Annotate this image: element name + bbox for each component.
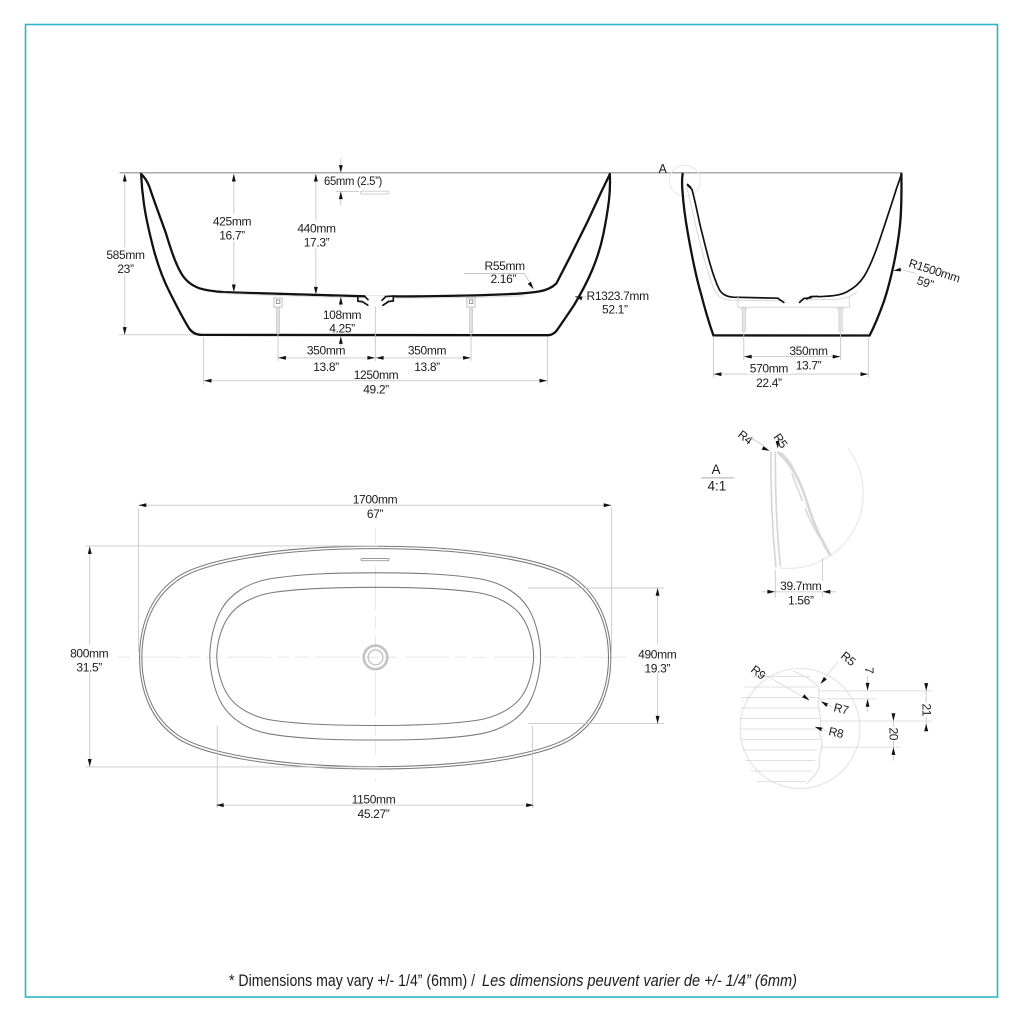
- svg-text:19.3”: 19.3”: [644, 661, 670, 675]
- svg-text:22.4”: 22.4”: [756, 376, 782, 390]
- svg-text:R55mm: R55mm: [485, 259, 526, 273]
- svg-text:350mm: 350mm: [789, 344, 828, 358]
- svg-text:800mm: 800mm: [70, 647, 109, 661]
- svg-text:585mm: 585mm: [106, 248, 145, 262]
- svg-text:39.7mm: 39.7mm: [780, 579, 822, 593]
- svg-text:4:1: 4:1: [708, 479, 727, 494]
- svg-text:1700mm: 1700mm: [353, 493, 398, 507]
- svg-text:R1323.7mm: R1323.7mm: [587, 289, 650, 303]
- svg-text:350mm: 350mm: [408, 343, 447, 357]
- svg-text:570mm: 570mm: [750, 362, 789, 376]
- svg-text:4.25”: 4.25”: [329, 322, 355, 336]
- svg-text:13.8”: 13.8”: [414, 360, 440, 374]
- svg-text:2.16”: 2.16”: [491, 272, 517, 286]
- svg-text:65mm (2.5”): 65mm (2.5”): [324, 174, 382, 188]
- svg-text:21: 21: [920, 703, 934, 716]
- svg-text:52.1”: 52.1”: [602, 303, 628, 317]
- svg-text:16.7”: 16.7”: [219, 229, 245, 243]
- svg-text:67”: 67”: [367, 507, 384, 521]
- svg-text:Les dimensions peuvent varier: Les dimensions peuvent varier de +/- 1/4…: [482, 972, 797, 990]
- svg-text:1150mm: 1150mm: [352, 793, 396, 807]
- svg-text:17.3”: 17.3”: [304, 236, 330, 250]
- svg-text:490mm: 490mm: [638, 648, 677, 662]
- svg-text:* Dimensions may vary +/- 1/4”: * Dimensions may vary +/- 1/4” (6mm) /: [229, 972, 479, 990]
- svg-text:20: 20: [887, 727, 901, 740]
- svg-text:31.5”: 31.5”: [76, 660, 102, 674]
- svg-text:1.56”: 1.56”: [788, 593, 814, 607]
- svg-text:350mm: 350mm: [307, 343, 346, 357]
- svg-text:13.8”: 13.8”: [313, 360, 339, 374]
- svg-text:A: A: [712, 462, 721, 477]
- svg-text:108mm: 108mm: [323, 308, 362, 322]
- svg-text:45.27”: 45.27”: [358, 807, 390, 821]
- svg-text:13.7”: 13.7”: [796, 359, 822, 373]
- svg-text:440mm: 440mm: [297, 222, 336, 236]
- svg-text:425mm: 425mm: [213, 215, 252, 229]
- svg-text:49.2”: 49.2”: [363, 383, 389, 397]
- svg-text:A: A: [659, 162, 668, 176]
- svg-text:1250mm: 1250mm: [354, 368, 399, 382]
- svg-text:7: 7: [862, 667, 876, 674]
- svg-text:23”: 23”: [117, 262, 134, 276]
